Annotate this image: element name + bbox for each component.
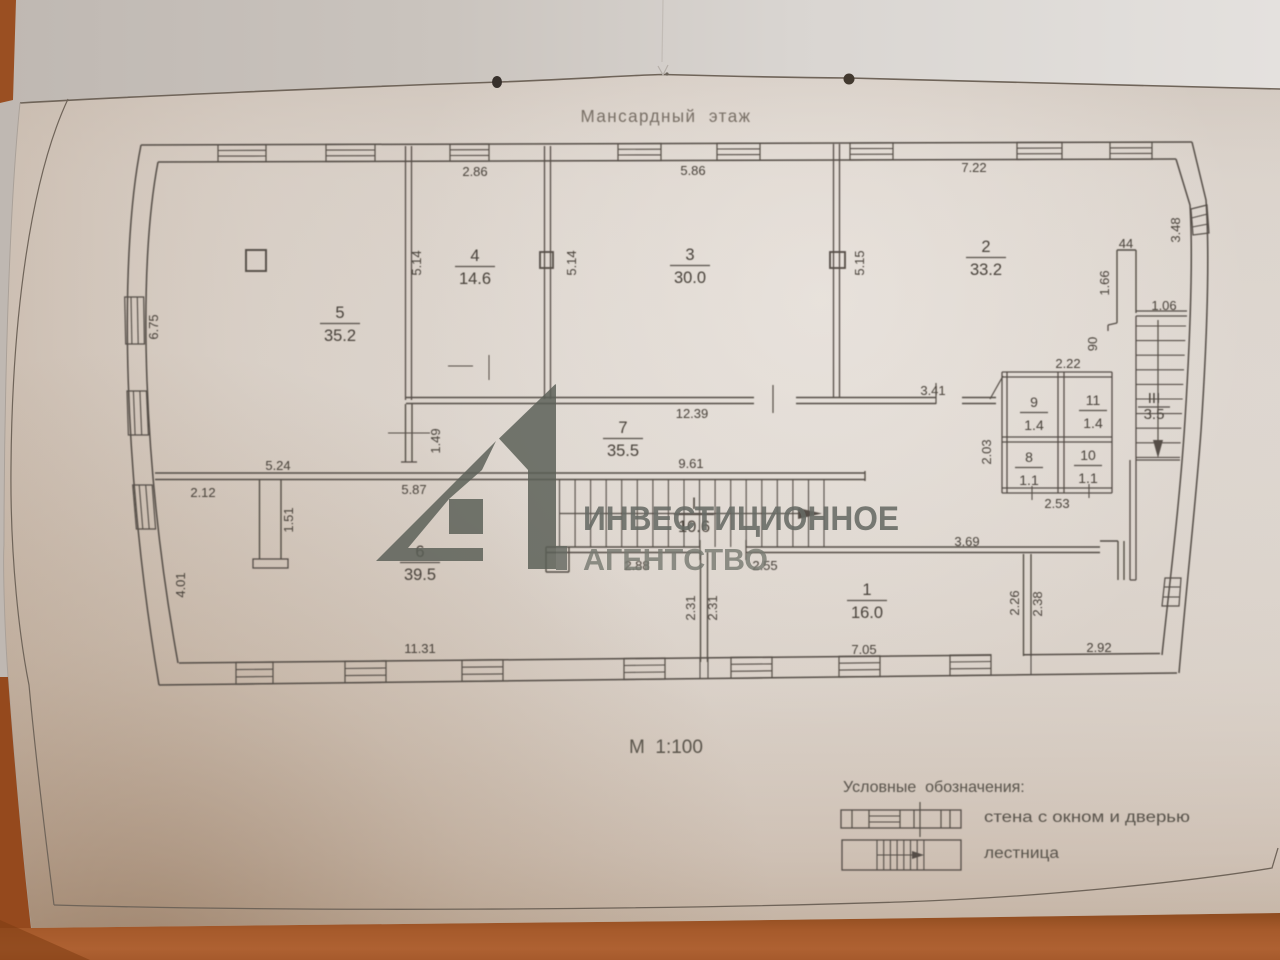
svg-text:3.5: 3.5	[1144, 406, 1165, 423]
svg-text:1: 1	[862, 581, 871, 599]
svg-text:стена с окном и дверью: стена с окном и дверью	[984, 809, 1190, 826]
svg-text:2.22: 2.22	[1055, 356, 1080, 371]
svg-text:5.87: 5.87	[401, 482, 426, 497]
svg-text:1.49: 1.49	[428, 428, 443, 453]
svg-text:2.92: 2.92	[1086, 640, 1111, 655]
svg-text:Мансардный этаж: Мансардный этаж	[581, 106, 752, 126]
svg-text:2.86: 2.86	[462, 164, 487, 179]
svg-text:4: 4	[470, 247, 479, 265]
svg-text:2.03: 2.03	[979, 439, 994, 464]
svg-text:39.5: 39.5	[404, 566, 436, 584]
svg-text:5.86: 5.86	[680, 163, 705, 178]
svg-text:1.1: 1.1	[1078, 470, 1098, 486]
svg-text:2.12: 2.12	[190, 485, 215, 500]
svg-text:1.51: 1.51	[281, 507, 296, 532]
svg-text:1.4: 1.4	[1024, 417, 1044, 433]
svg-text:12.39: 12.39	[676, 406, 709, 421]
svg-text:3: 3	[685, 246, 694, 264]
svg-text:16.0: 16.0	[851, 604, 883, 622]
svg-text:1.1: 1.1	[1019, 472, 1039, 488]
svg-text:1.4: 1.4	[1083, 415, 1103, 431]
svg-text:5: 5	[335, 304, 344, 322]
svg-text:8: 8	[1025, 449, 1033, 465]
svg-text:3.69: 3.69	[954, 534, 979, 549]
svg-text:2.53: 2.53	[1044, 496, 1069, 511]
svg-text:90: 90	[1085, 337, 1100, 351]
svg-text:2: 2	[981, 238, 990, 256]
svg-text:АГЕНТСТВО: АГЕНТСТВО	[583, 542, 768, 577]
svg-text:2.38: 2.38	[1030, 591, 1045, 616]
svg-text:6.75: 6.75	[146, 314, 161, 339]
svg-text:7.22: 7.22	[961, 160, 986, 175]
svg-text:7.05: 7.05	[851, 642, 876, 657]
svg-text:М 1:100: М 1:100	[629, 737, 703, 758]
svg-text:10: 10	[1080, 447, 1096, 463]
svg-text:35.5: 35.5	[607, 442, 639, 460]
svg-text:ИНВЕСТИЦИОННОЕ: ИНВЕСТИЦИОННОЕ	[583, 500, 899, 538]
svg-text:1.06: 1.06	[1151, 298, 1176, 313]
svg-text:44: 44	[1119, 236, 1133, 251]
svg-text:30.0: 30.0	[674, 269, 706, 287]
svg-text:9: 9	[1030, 394, 1038, 410]
svg-text:35.2: 35.2	[324, 327, 356, 345]
svg-text:5.15: 5.15	[852, 250, 867, 275]
svg-text:9.61: 9.61	[678, 456, 703, 471]
svg-text:2.31: 2.31	[683, 595, 698, 620]
svg-text:11: 11	[1086, 392, 1101, 408]
svg-text:Условные обозначения:: Условные обозначения:	[843, 779, 1025, 796]
svg-text:5.14: 5.14	[564, 250, 579, 275]
svg-text:4.01: 4.01	[173, 572, 188, 597]
svg-text:5.24: 5.24	[265, 458, 290, 473]
svg-text:III: III	[1148, 390, 1161, 407]
svg-text:лестница: лестница	[984, 845, 1059, 862]
svg-text:5.14: 5.14	[409, 250, 424, 275]
svg-text:3.48: 3.48	[1168, 217, 1183, 242]
svg-text:11.31: 11.31	[404, 641, 436, 656]
svg-text:3.41: 3.41	[920, 383, 945, 398]
svg-text:2.31: 2.31	[705, 595, 720, 620]
svg-text:33.2: 33.2	[970, 261, 1002, 279]
svg-text:1.66: 1.66	[1097, 270, 1112, 295]
svg-text:14.6: 14.6	[459, 270, 491, 288]
svg-text:7: 7	[618, 419, 627, 437]
svg-text:2.26: 2.26	[1007, 590, 1022, 615]
